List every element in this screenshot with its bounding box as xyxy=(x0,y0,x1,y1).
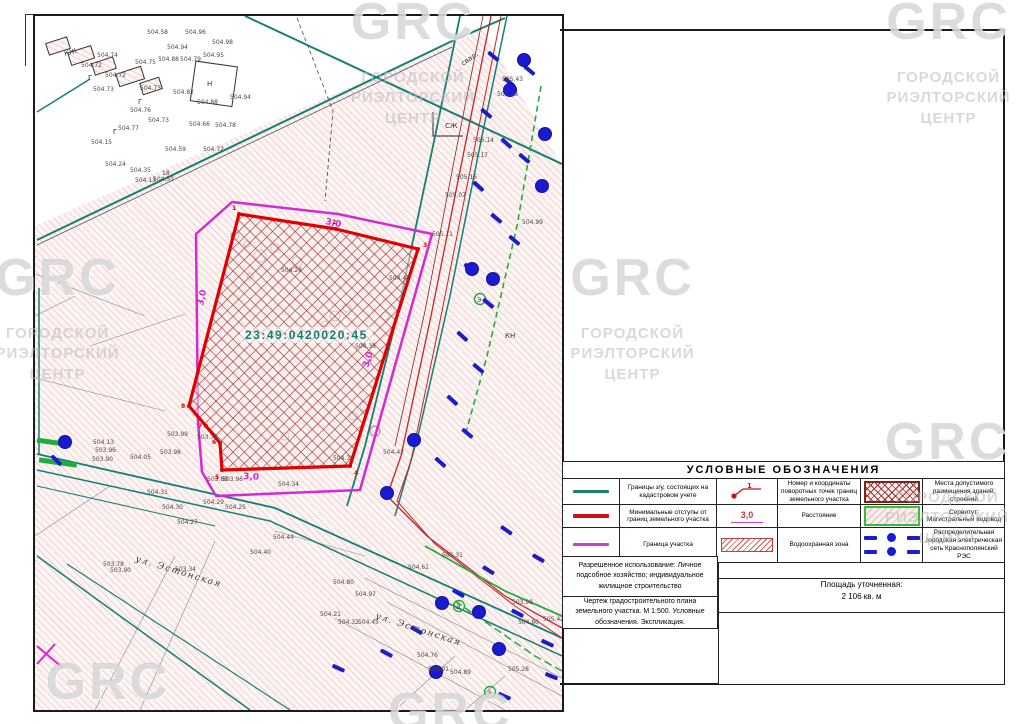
sheet-frame-top xyxy=(560,29,1005,31)
legend-label: Распределительная городская электрическа… xyxy=(923,528,1005,561)
map-label: 503.96 xyxy=(222,476,243,483)
map-label: 504.80 xyxy=(333,579,354,586)
map-label: 504.48 xyxy=(389,275,410,282)
map-label: 504.72 xyxy=(203,146,224,153)
map-label: 505.07 xyxy=(445,192,466,199)
map-label: 504.94 xyxy=(167,44,188,51)
area-box: Площадь уточненная: 2 106 кв. м xyxy=(718,552,1004,684)
legend-symbol-servitude xyxy=(861,505,923,528)
map-label: 504.30 xyxy=(162,504,183,511)
well-icon xyxy=(518,54,531,67)
map-label: 504.82 xyxy=(173,89,194,96)
map-label: 504.25 xyxy=(225,504,246,511)
area-value: 2 106 кв. м xyxy=(719,591,1004,603)
legend-symbol-distance: 3,0 xyxy=(717,505,778,528)
legend-symbol-power-line xyxy=(861,528,923,561)
map-label: 504.73 xyxy=(140,85,161,92)
map-svg: Э Э Э 504.58504.96504.98504.94504.75504.… xyxy=(35,16,562,710)
hatch-area-icon xyxy=(721,538,773,552)
map-label: СЖ xyxy=(445,122,458,130)
map-label: 504.58 xyxy=(147,29,168,36)
sheet-tick-h xyxy=(25,14,33,15)
legend-symbol-water-zone xyxy=(717,528,778,561)
magenta-line-icon xyxy=(573,543,609,546)
map-label: 504.98 xyxy=(212,39,233,46)
legend-table: УСЛОВНЫЕ ОБОЗНАЧЕНИЯ Границы з/у, состоя… xyxy=(562,461,1005,563)
map-area: Э Э Э 504.58504.96504.98504.94504.75504.… xyxy=(33,14,564,712)
map-label: 503.96 xyxy=(95,447,116,454)
map-label: 504.72 xyxy=(105,72,126,79)
map-label: 504.13 xyxy=(93,439,114,446)
map-label: 504.95 xyxy=(203,52,224,59)
map-label: 504.76 xyxy=(130,107,151,114)
map-label: 504.32 xyxy=(338,619,359,626)
map-label: 505.36 xyxy=(497,91,518,98)
map-label: 504.31 xyxy=(147,489,168,496)
map-label: 504.91 xyxy=(428,666,449,673)
parcel-id-label: 23:49:0420020:45 xyxy=(240,327,373,343)
legend-label: Расстояние xyxy=(778,505,861,528)
map-label: 2 xyxy=(332,219,336,226)
map-label: 504.53 xyxy=(153,176,174,183)
well-icon xyxy=(466,263,479,276)
turn-point-dot xyxy=(348,464,352,468)
legend-label: Сервитут: Магистральный водовод xyxy=(923,505,1005,528)
map-label: 504.75 xyxy=(135,59,156,66)
well-icon xyxy=(381,487,394,500)
map-label: 504.26 xyxy=(281,267,302,274)
map-label: 503.90 xyxy=(92,456,113,463)
permitted-use-box: Разрешенное использование: Личное подсоб… xyxy=(562,556,718,597)
map-label: 4 xyxy=(354,470,358,477)
map-label: 505.42 xyxy=(543,616,562,623)
turn-point-dot xyxy=(220,468,224,472)
legend-label: Минимальные отступы от границ земельного… xyxy=(620,505,717,528)
map-label: 504.44 xyxy=(273,534,294,541)
map-label: 504.21 xyxy=(320,611,341,618)
map-label: 504.97 xyxy=(355,591,376,598)
map-label: Г xyxy=(138,98,142,106)
red-line-icon xyxy=(573,514,609,518)
map-label: 503.90 xyxy=(110,567,131,574)
map-label: 504.99 xyxy=(522,219,543,226)
map-label: 504.96 xyxy=(185,29,206,36)
map-label: 504.15 xyxy=(91,139,112,146)
map-label: 504.40 xyxy=(250,549,271,556)
legend-label: Номер и координаты поворотных точек гран… xyxy=(778,479,861,505)
legend-symbol-turn-point: 1 xyxy=(717,479,778,505)
map-label: 505.11 xyxy=(432,231,453,238)
map-label: 504.34 xyxy=(278,481,299,488)
legend-label: Водоохранная зона xyxy=(778,528,861,561)
map-label: 504.78 xyxy=(215,122,236,129)
distance-icon: 3,0 xyxy=(731,510,764,523)
map-label: 3,0 xyxy=(243,472,259,483)
map-label: КН xyxy=(505,332,515,340)
power-line-icon xyxy=(864,533,920,556)
map-label: 504.59 xyxy=(165,146,186,153)
teal-line-icon xyxy=(573,490,609,493)
map-label: 504.36 xyxy=(355,343,376,350)
legend-symbol-min-offset xyxy=(563,505,620,528)
map-label: 6 xyxy=(212,439,216,446)
map-label: 18 xyxy=(162,170,170,177)
turn-point-dot xyxy=(237,212,241,216)
legend-symbol-cadastral-boundary xyxy=(563,479,620,505)
map-label: 505.17 xyxy=(467,152,488,159)
turn-point-dot xyxy=(204,424,208,428)
map-label: 504.39 xyxy=(333,455,354,462)
map-label: 504.73 xyxy=(148,117,169,124)
map-label: 503.98 xyxy=(512,599,533,606)
map-label: 505.14 xyxy=(473,137,494,144)
legend-label: Места допустимого размещения зданий, стр… xyxy=(923,479,1005,505)
map-label: Н xyxy=(207,80,212,88)
map-label: 5 xyxy=(215,474,219,481)
drawing-title-box: Чертеж градостроительного плана земельно… xyxy=(562,596,718,629)
well-icon xyxy=(487,273,500,286)
map-label: 8 xyxy=(181,403,185,410)
legend-symbol-building-spot xyxy=(861,479,923,505)
map-label: 504.05 xyxy=(130,454,151,461)
map-label: 504.72 xyxy=(81,62,102,69)
well-icon xyxy=(539,128,552,141)
sheet-tick-v xyxy=(25,14,26,66)
map-label: 1 xyxy=(232,205,236,212)
map-label: 504.89 xyxy=(450,669,471,676)
map-label: 504.94 xyxy=(230,94,251,101)
map-label: 505.16 xyxy=(456,174,477,181)
watermark: GRC ГОРОДСКОЙРИЭЛТОРСКИЙЦЕНТР xyxy=(540,248,725,385)
well-icon xyxy=(536,180,549,193)
map-label: 504.88 xyxy=(158,56,179,63)
crosshatch-area-icon xyxy=(864,481,920,503)
legend-label: Границы з/у, состоящих на кадастровом уч… xyxy=(620,479,717,505)
well-icon xyxy=(408,434,421,447)
svg-text:1: 1 xyxy=(747,483,752,490)
map-label: 505.28 xyxy=(508,666,529,673)
map-label: Г xyxy=(88,74,92,82)
map-label: 504.73 xyxy=(93,86,114,93)
watermark: GRC ГОРОДСКОЙРИЭЛТОРСКИЙЦЕНТР xyxy=(866,0,1024,129)
map-label: 504.42 xyxy=(383,449,404,456)
map-label: 504.61 xyxy=(408,564,429,571)
map-label: 503.99 xyxy=(167,431,188,438)
map-label: 504.76 xyxy=(417,652,438,659)
map-label: 504.24 xyxy=(105,161,126,168)
legend-title: УСЛОВНЫЕ ОБОЗНАЧЕНИЯ xyxy=(563,462,1004,479)
map-label: 503.98 xyxy=(160,449,181,456)
turn-point-dot xyxy=(218,441,222,445)
well-icon xyxy=(59,436,72,449)
well-icon xyxy=(473,606,486,619)
area-label: Площадь уточненная: xyxy=(719,579,1004,591)
svg-text:Э: Э xyxy=(487,690,491,697)
map-label: Г xyxy=(113,128,117,136)
map-label: 504.74 xyxy=(97,52,118,59)
map-label: 7 xyxy=(198,423,202,430)
map-label: 504.66 xyxy=(189,121,210,128)
turn-point-dot xyxy=(187,404,191,408)
svg-text:Э: Э xyxy=(456,604,460,611)
map-label: 504.77 xyxy=(118,125,139,132)
map-label: 504.35 xyxy=(130,167,151,174)
plan-sheet: Э Э Э 504.58504.96504.98504.94504.75504.… xyxy=(0,0,1024,724)
map-label: 504.79 xyxy=(180,56,201,63)
servitude-area-icon xyxy=(864,506,920,526)
turn-point-icon: 1 xyxy=(727,483,767,501)
map-label: 505.43 xyxy=(502,76,523,83)
map-label: 505.31 xyxy=(442,552,463,559)
turn-point-dot xyxy=(416,247,420,251)
map-label: 504.88 xyxy=(197,99,218,106)
map-label: 3 xyxy=(423,242,427,249)
svg-text:Э: Э xyxy=(477,297,481,304)
map-label: 504.29 xyxy=(203,499,224,506)
well-icon xyxy=(493,643,506,656)
map-label: 504.60 xyxy=(518,619,539,626)
map-label: 504.27 xyxy=(177,519,198,526)
well-icon xyxy=(436,597,449,610)
